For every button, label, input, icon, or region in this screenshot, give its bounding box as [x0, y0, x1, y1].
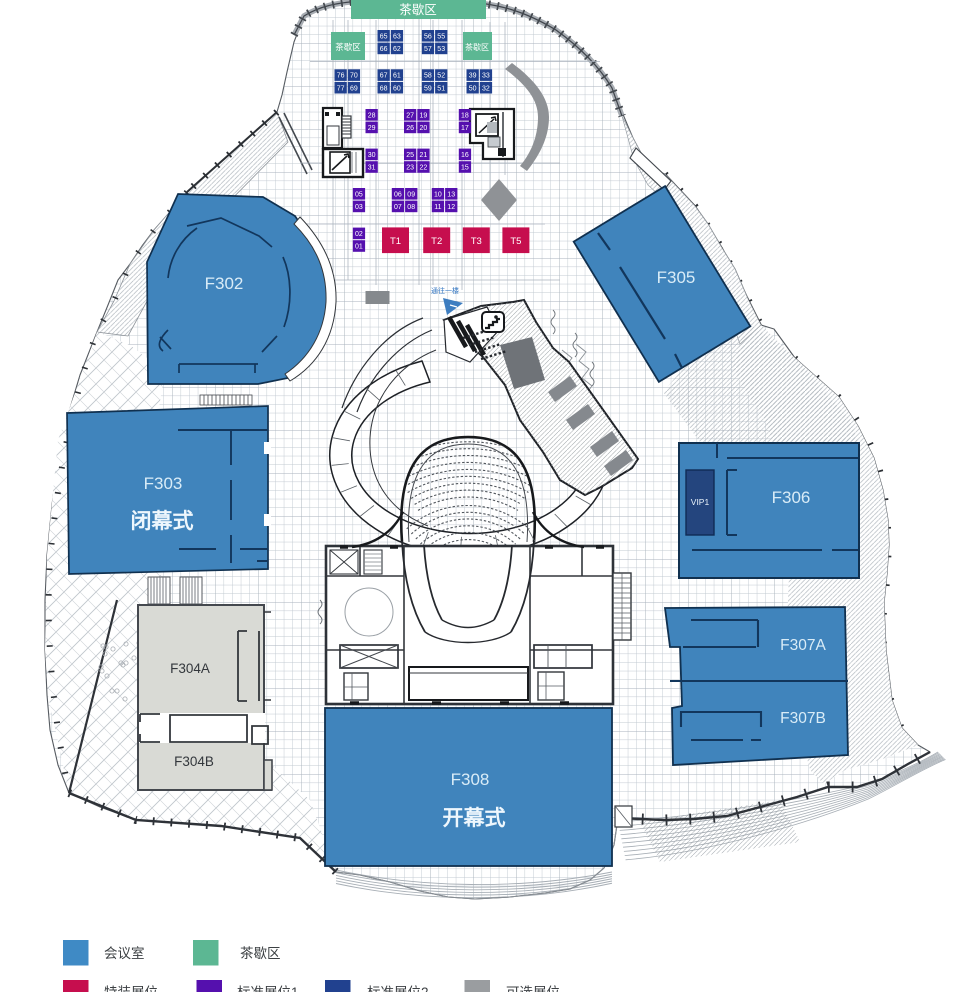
svg-text:23: 23: [406, 165, 414, 172]
svg-text:19: 19: [420, 112, 428, 119]
svg-text:08: 08: [407, 204, 415, 211]
svg-text:18: 18: [461, 112, 469, 119]
svg-text:77: 77: [337, 85, 345, 92]
svg-text:33: 33: [482, 73, 490, 80]
svg-text:01: 01: [355, 244, 363, 251]
svg-text:闭幕式: 闭幕式: [131, 509, 194, 533]
svg-text:标准展位2: 标准展位2: [367, 985, 429, 992]
svg-text:07: 07: [394, 204, 402, 211]
svg-text:70: 70: [350, 73, 358, 80]
svg-text:可选展位: 可选展位: [506, 985, 560, 992]
svg-text:10: 10: [434, 191, 442, 198]
svg-text:标准展位1: 标准展位1: [237, 985, 299, 992]
svg-text:茶歇区: 茶歇区: [335, 42, 361, 52]
svg-text:57: 57: [424, 46, 432, 53]
svg-text:27: 27: [406, 112, 414, 119]
svg-text:55: 55: [437, 33, 445, 40]
svg-text:51: 51: [437, 85, 445, 92]
svg-text:62: 62: [393, 46, 401, 53]
svg-text:T3: T3: [471, 236, 482, 247]
svg-text:31: 31: [368, 165, 376, 172]
svg-text:28: 28: [368, 112, 376, 119]
svg-text:09: 09: [407, 191, 415, 198]
svg-text:11: 11: [434, 204, 441, 211]
svg-text:F304B: F304B: [174, 754, 214, 769]
svg-text:66: 66: [380, 46, 388, 53]
svg-text:茶歇区: 茶歇区: [465, 42, 489, 52]
svg-text:65: 65: [380, 33, 388, 40]
svg-text:39: 39: [469, 73, 477, 80]
svg-text:63: 63: [393, 33, 401, 40]
svg-text:F303: F303: [144, 474, 183, 493]
svg-text:特装展位: 特装展位: [104, 985, 158, 992]
svg-text:21: 21: [420, 152, 428, 159]
svg-text:60: 60: [393, 85, 401, 92]
svg-text:06: 06: [394, 191, 402, 198]
svg-text:15: 15: [461, 165, 469, 172]
svg-text:开幕式: 开幕式: [443, 806, 506, 830]
svg-text:67: 67: [380, 73, 388, 80]
svg-text:76: 76: [337, 73, 345, 80]
svg-text:05: 05: [355, 191, 363, 198]
svg-text:T1: T1: [390, 236, 401, 247]
svg-text:26: 26: [406, 125, 414, 132]
svg-text:59: 59: [424, 85, 432, 92]
svg-text:56: 56: [424, 33, 432, 40]
svg-text:53: 53: [437, 46, 445, 53]
svg-text:F305: F305: [657, 268, 696, 287]
svg-text:61: 61: [393, 73, 401, 80]
svg-text:17: 17: [461, 125, 469, 132]
svg-text:16: 16: [461, 152, 469, 159]
svg-text:会议室: 会议室: [104, 945, 145, 961]
svg-text:32: 32: [482, 85, 490, 92]
svg-text:58: 58: [424, 73, 432, 80]
svg-text:69: 69: [350, 85, 358, 92]
svg-text:茶歇区: 茶歇区: [399, 2, 437, 17]
svg-text:13: 13: [447, 191, 455, 198]
svg-text:F308: F308: [451, 770, 490, 789]
svg-text:52: 52: [437, 73, 445, 80]
svg-text:30: 30: [368, 152, 376, 159]
svg-text:T2: T2: [431, 236, 442, 247]
svg-text:茶歇区: 茶歇区: [240, 946, 281, 961]
svg-text:F307A: F307A: [780, 637, 826, 654]
svg-text:02: 02: [355, 231, 363, 238]
svg-text:VIP1: VIP1: [691, 497, 710, 507]
svg-text:20: 20: [420, 125, 428, 132]
svg-text:03: 03: [355, 204, 363, 211]
svg-text:22: 22: [420, 165, 428, 172]
svg-text:F307B: F307B: [780, 710, 826, 727]
svg-text:通往一楼: 通往一楼: [431, 286, 459, 295]
svg-text:29: 29: [368, 125, 376, 132]
svg-text:25: 25: [406, 152, 414, 159]
svg-text:F306: F306: [772, 488, 811, 507]
svg-text:12: 12: [447, 204, 455, 211]
svg-text:F302: F302: [205, 274, 244, 293]
svg-text:68: 68: [380, 85, 388, 92]
svg-text:50: 50: [469, 85, 477, 92]
svg-text:F304A: F304A: [170, 661, 210, 676]
svg-text:T5: T5: [510, 236, 521, 247]
